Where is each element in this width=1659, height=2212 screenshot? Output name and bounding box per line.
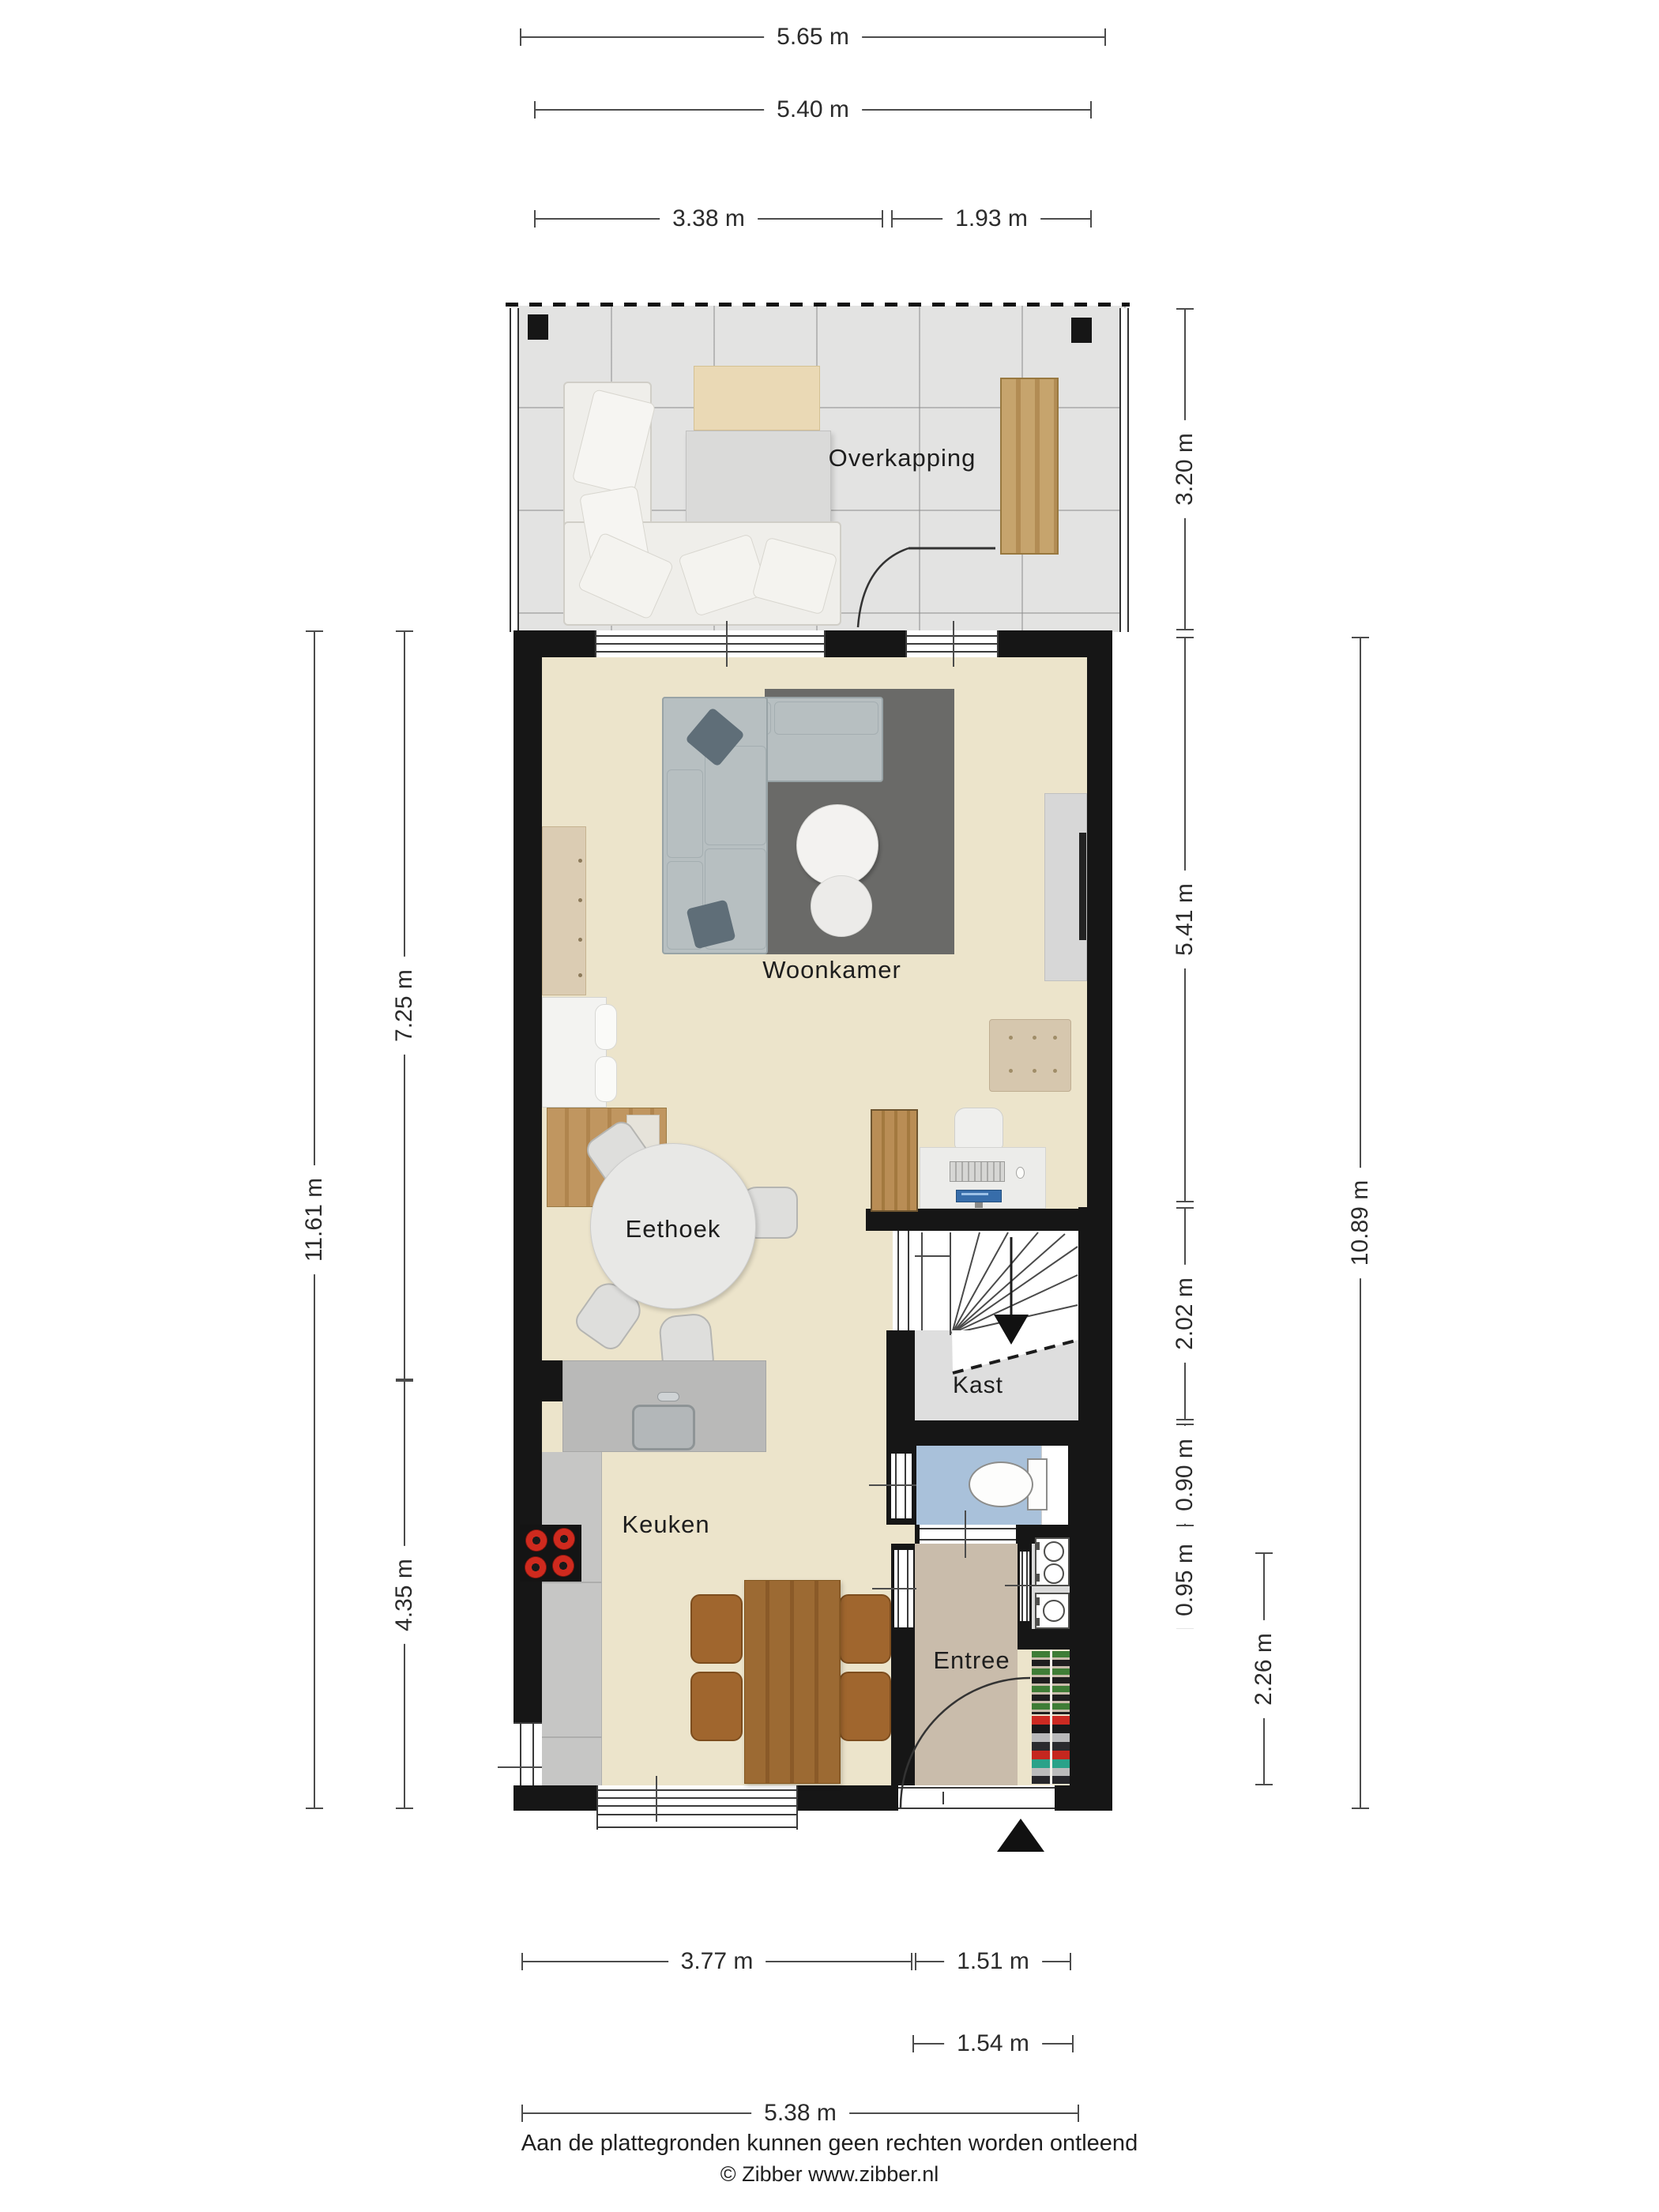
cabinet-beige (542, 826, 586, 995)
window-tick (498, 1766, 542, 1768)
tv (1079, 833, 1086, 940)
dining-chair-wood (690, 1672, 743, 1741)
dim-right-total-label: 10.89 m (1347, 1168, 1374, 1278)
dim-right-entree-label: 2.26 m (1251, 1620, 1277, 1718)
dim-bottom-door-label: 1.51 m (944, 1948, 1042, 1975)
kitchen-faucet (657, 1392, 679, 1401)
window-tick (656, 1776, 657, 1822)
overkapping-wall-left (510, 308, 519, 632)
cabinet-white (542, 997, 607, 1108)
room-label-woonkamer: Woonkamer (762, 956, 901, 984)
front-door-opening (898, 1785, 1055, 1811)
room-label-entree: Entree (933, 1646, 1010, 1675)
cooktop (520, 1525, 581, 1582)
floorplan-page: 5.65 m 5.40 m 3.38 m 1.93 m 11.61 m 7.25… (0, 0, 1659, 2212)
kitchen-sink (632, 1405, 695, 1450)
window-tick (872, 1588, 916, 1589)
room-label-eethoek: Eethoek (626, 1215, 721, 1243)
dim-right-woonkamer-label: 5.41 m (1172, 871, 1198, 969)
window-kitchen (596, 1785, 798, 1811)
footer-disclaimer: Aan de plattegronden kunnen geen rechten… (0, 2131, 1659, 2157)
window-tick (953, 621, 954, 667)
footer-credit-text: © Zibber www.zibber.nl (720, 2162, 939, 2186)
window-livingroom-small (905, 630, 999, 657)
dining-table (744, 1580, 841, 1784)
dining-chair-wood (690, 1594, 743, 1664)
dim-bottom-total-label: 5.38 m (751, 2100, 849, 2127)
dim-right-washroom-label: 0.95 m (1172, 1531, 1198, 1629)
stairs-balustrade (893, 1231, 915, 1330)
keyboard (950, 1161, 1005, 1182)
dim-left-upper-label: 7.25 m (391, 957, 418, 1055)
dim-right-overkapping-label: 3.20 m (1172, 420, 1198, 518)
overkapping-post-right (1071, 318, 1092, 343)
overkapping-wall-right (1119, 308, 1129, 632)
dryer (1035, 1537, 1070, 1586)
overkapping-roofline (506, 303, 1130, 307)
wall-left (513, 630, 542, 1811)
dining-chair-wood (839, 1594, 891, 1664)
dim-left-lower-label: 4.35 m (391, 1546, 418, 1644)
window-tick (726, 621, 728, 667)
wall-kast-toilet (886, 1420, 1078, 1446)
coat-rack-rail (1050, 1650, 1052, 1785)
window-kitchen-sill (596, 1811, 798, 1830)
window-toilet-left (891, 1454, 912, 1518)
toilet-bowl (969, 1461, 1033, 1507)
overkapping-post-left (528, 314, 548, 340)
window-washroom (1020, 1552, 1029, 1621)
wall-right (1087, 630, 1112, 1811)
coffee-table-large (796, 804, 878, 886)
toilet-door (920, 1525, 1016, 1544)
wall-right-washroom (1070, 1526, 1087, 1811)
footer-credit: © Zibber www.zibber.nl (0, 2162, 1659, 2187)
dining-chair-wood (839, 1672, 891, 1741)
wall-kast-left (886, 1330, 915, 1424)
dim-top-inner-label: 5.40 m (764, 96, 862, 123)
footer-disclaimer-text: Aan de plattegronden kunnen geen rechten… (521, 2131, 1138, 2156)
coffee-table-small (811, 875, 872, 937)
mouse (1016, 1167, 1025, 1179)
cabinet-stairs-wood (871, 1109, 918, 1212)
kitchen-counter-side (542, 1452, 602, 1785)
stairs-floor (915, 1231, 1078, 1330)
dim-bottom-kitchen-label: 3.77 m (668, 1948, 766, 1975)
dim-top-left-label: 3.38 m (660, 205, 758, 232)
wall-stairs-top (866, 1209, 1087, 1231)
door-tick (965, 1510, 966, 1558)
monitor (956, 1190, 1002, 1202)
outdoor-rug (694, 366, 820, 431)
dim-left-total-label: 11.61 m (301, 1165, 328, 1274)
dim-top-right-label: 1.93 m (942, 205, 1040, 232)
dim-top-total-label: 5.65 m (764, 24, 862, 51)
wall-right-stairs (1078, 1207, 1087, 1422)
room-label-overkapping: Overkapping (829, 444, 976, 472)
ottoman (989, 1019, 1071, 1092)
washing-machine (1035, 1593, 1070, 1629)
window-tick (869, 1484, 916, 1486)
desk-chair (954, 1108, 1003, 1150)
dim-right-toilet-label: 0.90 m (1172, 1426, 1198, 1524)
monitor-stand (975, 1202, 983, 1208)
room-label-keuken: Keuken (622, 1510, 709, 1539)
window-livingroom-large (595, 630, 826, 657)
wall-washroom-bottom (1018, 1629, 1087, 1650)
dim-bottom-entree-label: 1.54 m (944, 2030, 1042, 2057)
dim-right-stairs-label: 2.02 m (1172, 1265, 1198, 1363)
room-label-kast: Kast (953, 1372, 1003, 1399)
wall-kitchen-notch (513, 1360, 562, 1401)
garden-bench (1000, 378, 1059, 555)
